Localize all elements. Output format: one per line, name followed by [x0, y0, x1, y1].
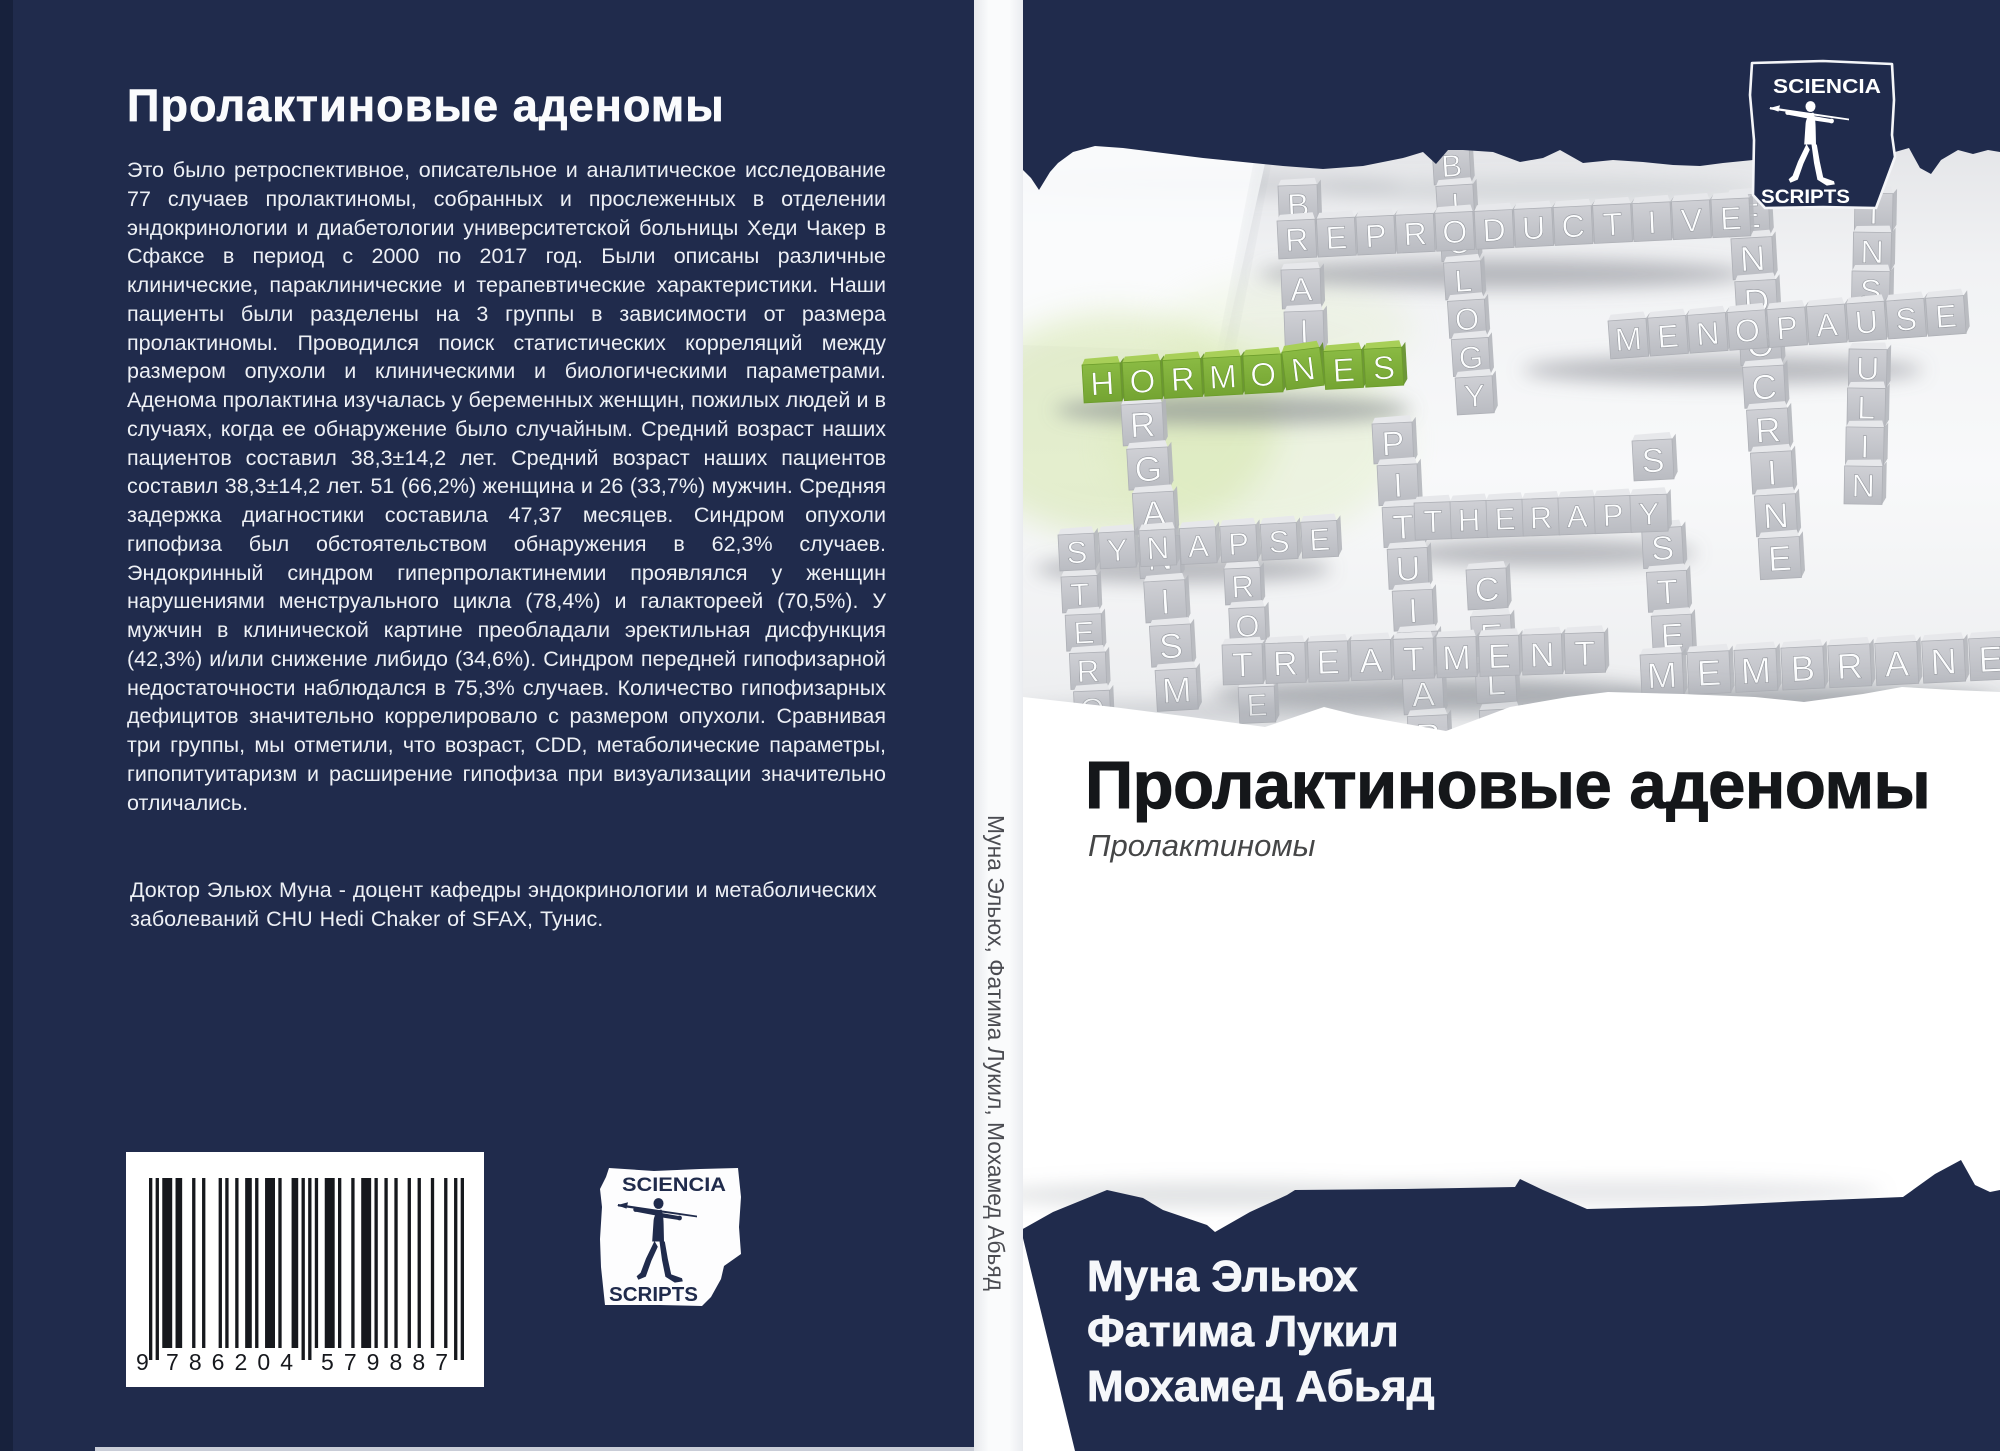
svg-text:S: S — [1372, 348, 1396, 386]
svg-text:N: N — [1739, 239, 1766, 279]
svg-text:R: R — [1285, 221, 1310, 258]
svg-text:U: U — [1856, 351, 1880, 387]
svg-text:I: I — [1860, 429, 1870, 465]
svg-text:E: E — [1308, 522, 1330, 558]
svg-text:R: R — [1231, 569, 1255, 605]
svg-text:U: U — [1521, 209, 1546, 246]
svg-text:N: N — [1860, 234, 1884, 270]
svg-text:T: T — [1392, 508, 1415, 547]
svg-text:R: R — [1273, 645, 1299, 684]
svg-text:E: E — [1719, 200, 1742, 237]
svg-text:E: E — [1332, 351, 1356, 389]
svg-text:E: E — [1325, 219, 1348, 256]
svg-text:Муна Эльюх, Фатима Лукил, Моха: Муна Эльюх, Фатима Лукил, Мохамед Абьяд — [983, 815, 1009, 1292]
svg-text:D: D — [1482, 211, 1507, 248]
svg-text:U: U — [1854, 303, 1880, 341]
svg-text:C: C — [1751, 367, 1778, 407]
svg-text:T: T — [1574, 635, 1596, 674]
svg-text:P: P — [1227, 526, 1249, 562]
svg-text:SCRIPTS: SCRIPTS — [609, 1284, 698, 1306]
svg-text:Y: Y — [1106, 532, 1128, 568]
svg-text:S: S — [1066, 534, 1088, 570]
svg-text:SCIENCIA: SCIENCIA — [1773, 75, 1881, 98]
svg-text:SCIENCIA: SCIENCIA — [622, 1175, 726, 1196]
svg-text:T: T — [1232, 646, 1254, 685]
svg-text:O: O — [1734, 312, 1761, 350]
svg-text:T: T — [1070, 577, 1091, 613]
svg-text:E: E — [1934, 298, 1958, 335]
svg-text:R: R — [1403, 215, 1428, 252]
svg-text:T: T — [1403, 640, 1425, 679]
svg-text:R: R — [1529, 500, 1553, 536]
svg-text:E: E — [1656, 318, 1680, 355]
svg-text:A: A — [1359, 642, 1383, 681]
svg-text:U: U — [1395, 550, 1421, 589]
svg-text:E: E — [1696, 652, 1722, 694]
svg-text:P: P — [1381, 425, 1406, 464]
svg-text:Y: Y — [1638, 496, 1660, 532]
svg-text:I: I — [1408, 592, 1419, 630]
svg-text:A: A — [1187, 528, 1210, 564]
svg-text:N: N — [1930, 640, 1958, 682]
svg-text:O: O — [1249, 355, 1277, 393]
svg-text:A: A — [1815, 306, 1840, 343]
svg-text:R: R — [1170, 360, 1196, 398]
svg-text:I: I — [1647, 204, 1658, 240]
svg-text:579887: 579887 — [321, 1349, 448, 1375]
svg-text:H: H — [1089, 364, 1115, 402]
svg-text:P: P — [1602, 497, 1624, 533]
svg-text:E: E — [1767, 539, 1793, 579]
svg-text:T: T — [1602, 206, 1623, 243]
svg-text:N: N — [1851, 467, 1875, 503]
svg-text:T: T — [1656, 573, 1679, 612]
svg-text:E: E — [1494, 501, 1516, 537]
svg-text:M: M — [1740, 649, 1772, 691]
svg-text:SCRIPTS: SCRIPTS — [1761, 186, 1850, 208]
svg-text:G: G — [1134, 449, 1163, 489]
svg-text:9: 9 — [136, 1349, 149, 1375]
svg-text:E: E — [1073, 615, 1095, 651]
svg-text:N: N — [1529, 636, 1555, 675]
svg-text:T: T — [1423, 504, 1443, 540]
svg-text:N: N — [1289, 349, 1317, 389]
svg-text:V: V — [1680, 202, 1704, 239]
svg-text:Y: Y — [1463, 378, 1486, 414]
svg-text:S: S — [1650, 529, 1675, 568]
svg-text:L: L — [1857, 390, 1875, 426]
svg-text:S: S — [1268, 524, 1290, 560]
svg-text:M: M — [1614, 320, 1643, 358]
svg-text:H: H — [1457, 502, 1481, 538]
svg-text:N: N — [1762, 496, 1789, 536]
svg-text:E: E — [1487, 638, 1511, 677]
svg-text:S: S — [1894, 300, 1918, 337]
svg-text:R: R — [1754, 410, 1781, 450]
svg-text:O: O — [1129, 362, 1157, 400]
svg-text:A: A — [1566, 499, 1588, 535]
svg-text:R: R — [1076, 653, 1100, 689]
svg-text:N: N — [1695, 315, 1721, 353]
svg-text:A: A — [1884, 643, 1910, 685]
svg-text:S: S — [1158, 626, 1184, 666]
svg-text:C: C — [1561, 207, 1586, 244]
svg-text:E: E — [1978, 638, 2000, 680]
svg-text:P: P — [1775, 309, 1799, 346]
svg-text:C: C — [1474, 570, 1501, 609]
svg-text:P: P — [1364, 217, 1387, 254]
svg-text:A: A — [1290, 270, 1313, 308]
svg-text:B: B — [1790, 647, 1816, 689]
svg-text:I: I — [1392, 467, 1403, 505]
svg-text:E: E — [1316, 643, 1340, 682]
svg-text:786204: 786204 — [166, 1349, 293, 1375]
svg-text:N: N — [1146, 530, 1170, 566]
svg-text:S: S — [1641, 441, 1666, 480]
svg-text:M: M — [1442, 639, 1472, 678]
svg-text:M: M — [1208, 357, 1238, 395]
svg-text:R: R — [1129, 405, 1156, 445]
svg-text:O: O — [1441, 213, 1468, 250]
svg-text:R: R — [1836, 645, 1864, 687]
